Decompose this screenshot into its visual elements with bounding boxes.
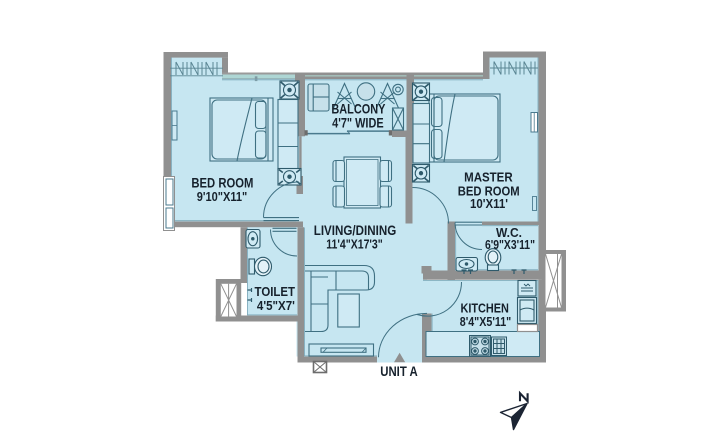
svg-text:UNIT A: UNIT A: [380, 363, 418, 379]
svg-text:TOILET: TOILET: [255, 284, 296, 299]
svg-text:9'10"X11": 9'10"X11": [197, 189, 248, 204]
svg-text:LIVING/DINING: LIVING/DINING: [314, 222, 397, 238]
svg-text:MASTER: MASTER: [464, 170, 513, 185]
svg-text:4'5"X7': 4'5"X7': [257, 298, 295, 313]
svg-text:11'4"X17'3": 11'4"X17'3": [326, 237, 383, 252]
svg-text:10'X11': 10'X11': [470, 196, 508, 211]
svg-text:4'7" WIDE: 4'7" WIDE: [332, 116, 384, 131]
svg-text:BALCONY: BALCONY: [331, 101, 386, 117]
svg-text:6'9"X3'11": 6'9"X3'11": [485, 238, 535, 252]
svg-text:8'4"X5'11": 8'4"X5'11": [460, 314, 512, 329]
